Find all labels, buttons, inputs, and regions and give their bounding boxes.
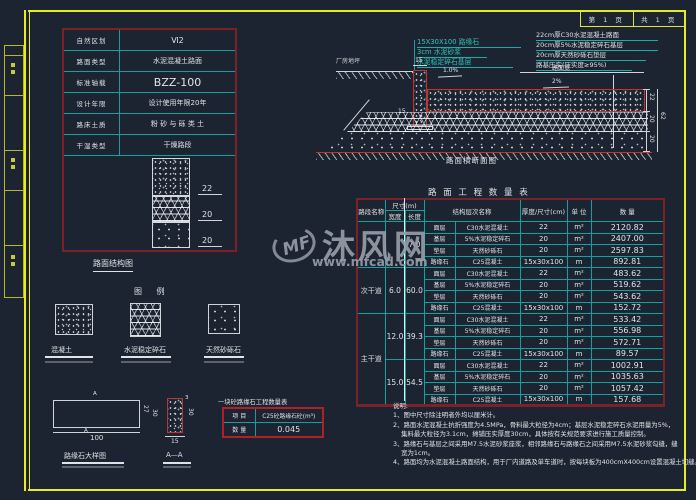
structure-layer-gravel	[152, 222, 190, 248]
curb-elevation-rect	[53, 400, 140, 428]
revision-stamp-icon	[11, 158, 15, 162]
notes-heading: 说明:	[393, 402, 693, 411]
structure-dim: 20	[202, 236, 212, 245]
spec-row: 自然区划 Ⅵ2	[64, 30, 235, 51]
slope-tick	[438, 75, 462, 77]
thickness-cell: 15x30x100	[520, 348, 567, 360]
notes-block: 说明:1、图中尺寸除注明者外均以厘米计。2、路面水泥混凝土抗折强度为4.5MPa…	[393, 402, 693, 468]
note-line: 4、路面均为水泥混凝土路面结构，用于厂内道路及单车道时，按每块板为400cmX4…	[393, 458, 693, 467]
revision-stamp-icon	[11, 255, 15, 259]
quantity-cell: 543.62	[591, 291, 664, 303]
curb-section-rect	[167, 398, 183, 433]
legend-underline	[121, 361, 171, 363]
dim-total-line	[657, 89, 658, 152]
legend-label: 混凝土	[51, 345, 72, 355]
revision-divider	[4, 95, 24, 96]
section-marker-bottom: A	[84, 428, 88, 434]
thickness-cell: 20	[520, 383, 567, 395]
quantity-cell: 2120.82	[591, 222, 664, 234]
curb-section-caption: A—A	[166, 451, 183, 459]
structure-layer-base	[152, 196, 190, 222]
spec-value: 设计使用年限20年	[120, 93, 235, 113]
mini-row-value: 0.045	[255, 423, 323, 438]
legend-underline	[121, 356, 171, 358]
note-line: 2、路面水泥混凝土抗折强度为4.5MPa，骨料最大粒径为4cm；基层水泥稳定碎石…	[393, 421, 693, 430]
unit-cell: m	[567, 256, 591, 268]
structure-dim: 20	[202, 210, 212, 219]
thickness-cell: 20	[520, 337, 567, 349]
width-cell: 6.0	[385, 268, 405, 314]
quantity-cell: 2597.83	[591, 245, 664, 257]
section-marker-top: A	[93, 391, 97, 397]
base-course	[347, 112, 648, 132]
section-name-cell: 主干道	[357, 314, 385, 406]
material-cell: C30水泥混凝土	[455, 314, 520, 326]
thickness-cell: 20	[520, 325, 567, 337]
legend-title: 图 例	[134, 286, 171, 297]
material-cell: 5%水泥稳定碎石	[455, 325, 520, 337]
curb-elevation-caption: 路缘石大样图	[64, 451, 106, 461]
dim-underline	[198, 220, 222, 221]
header-thickness: 厚度/尺寸(cm)	[520, 199, 567, 222]
quantity-cell: 519.62	[591, 279, 664, 291]
dim-line	[413, 65, 427, 66]
legend-swatch-cement-stabilized	[130, 303, 161, 337]
thickness-cell: 22	[520, 268, 567, 280]
quantity-cell: 556.98	[591, 325, 664, 337]
note-line: 3、路缘石与基层之间采用M7.5水泥砂浆座浆，相邻路缘石与路缘石之间采用M7.5…	[393, 440, 693, 449]
curb-dim-inner: 27	[142, 405, 149, 413]
material-cell: 天然砂砾石	[455, 245, 520, 257]
thickness-cell: 20	[520, 245, 567, 257]
unit-cell: m²	[567, 291, 591, 303]
thickness-cell: 20	[520, 291, 567, 303]
revision-divider	[4, 245, 24, 246]
material-cell: C30水泥混凝土	[455, 222, 520, 234]
inner-slope-label: 1.0%	[443, 67, 458, 74]
page-current-label: 第 1 页	[581, 12, 634, 26]
frame-left-inner-line	[29, 10, 30, 491]
section-height-dim: 30	[187, 408, 194, 416]
spec-row: 干湿类型 干燥路段	[64, 135, 235, 156]
quantity-cell: 572.71	[591, 337, 664, 349]
legend-underline	[45, 356, 93, 358]
unit-cell: m²	[567, 268, 591, 280]
legend-underline	[204, 361, 244, 363]
section-width-dim: 15	[171, 438, 179, 445]
revision-stamp-icon	[11, 63, 15, 67]
layer-cell: 基层	[424, 371, 455, 383]
unit-cell: m	[567, 348, 591, 360]
header-section: 路段名称	[357, 199, 385, 222]
dim-underline	[198, 246, 222, 247]
quantity-cell: 1057.42	[591, 383, 664, 395]
layer-cell: 面层	[424, 314, 455, 326]
legend-swatch-concrete	[55, 304, 93, 335]
material-cell: 5%水泥稳定碎石	[455, 279, 520, 291]
spec-label: 干湿类型	[64, 135, 120, 155]
spec-label: 标准轴载	[64, 72, 120, 92]
unit-cell: m²	[567, 314, 591, 326]
thickness-cell: 20	[520, 233, 567, 245]
legend-label: 水泥稳定碎石	[124, 345, 166, 355]
legend-underline	[204, 356, 244, 358]
quantity-cell: 89.57	[591, 348, 664, 360]
spec-row: 设计年限 设计使用年限20年	[64, 93, 235, 114]
material-cell: 5%水泥稳定碎石	[455, 233, 520, 245]
dim-line	[53, 432, 140, 433]
layer-cell: 路缘石	[424, 348, 455, 360]
material-cell: C25混凝土	[455, 302, 520, 314]
header-structure: 结构层次名称	[424, 199, 520, 222]
dim-tick	[643, 111, 650, 112]
caption-underline	[62, 466, 124, 468]
thickness-cell: 15x30x100	[520, 302, 567, 314]
legend-swatch-gravel	[208, 304, 240, 334]
revision-divider	[4, 55, 24, 56]
span-dim-label: 路面宽	[552, 63, 570, 72]
dim-chain-line	[646, 89, 647, 152]
structure-diagram-caption: 路面结构图	[93, 258, 133, 272]
curb-dim-outer: 30	[151, 409, 158, 417]
cad-sheet: 第 1 页 共 1 页 自然区划 Ⅵ2 路面类型 水泥混凝土路面 标准轴载 BZ…	[0, 0, 696, 500]
spec-row: 路床土质 粉 砂 与 砾 类 土	[64, 114, 235, 135]
mini-table-title: 一块砼路缘石工程数量表	[218, 397, 287, 406]
dim-line	[165, 436, 185, 437]
header-unit: 单 位	[567, 199, 591, 222]
layer-dim: 20	[648, 135, 655, 143]
revision-divider	[4, 190, 24, 191]
section-name-cell: 次干道	[357, 268, 385, 314]
spec-value: 水泥混凝土路面	[120, 51, 235, 71]
spec-value: 粉 砂 与 砾 类 土	[120, 114, 235, 134]
spec-row: 标准轴载 BZZ-100	[64, 72, 235, 93]
caption-underline	[163, 466, 191, 468]
structure-layer-concrete	[152, 158, 190, 196]
material-cell: 天然砂砾石	[455, 337, 520, 349]
mini-row-label: 项 目	[223, 408, 255, 423]
page-number-box: 第 1 页 共 1 页	[580, 11, 686, 27]
quantity-cell: 1035.63	[591, 371, 664, 383]
thickness-cell: 20	[520, 279, 567, 291]
material-cell: C25混凝土	[455, 256, 520, 268]
length-cell: 54.5	[405, 360, 424, 406]
thickness-cell: 22	[520, 314, 567, 326]
frame-revision-column	[4, 45, 24, 298]
mini-row-value: C25砼路缘石砼(m³)	[255, 408, 323, 423]
material-cell: 5%水泥稳定碎石	[455, 371, 520, 383]
material-cell: C30水泥混凝土	[455, 268, 520, 280]
dim-tick	[643, 151, 650, 152]
layer-cell: 路缘石	[424, 302, 455, 314]
length-cell: 39.3	[405, 314, 424, 360]
layer-cell: 面层	[424, 360, 455, 372]
spec-label: 自然区划	[64, 30, 120, 50]
quantity-cell: 1002.91	[591, 360, 664, 372]
page-total-label: 共 1 页	[634, 12, 686, 26]
unit-cell: m²	[567, 245, 591, 257]
quantity-cell: 152.72	[591, 302, 664, 314]
unit-cell: m²	[567, 233, 591, 245]
unit-cell: m²	[567, 383, 591, 395]
spec-value: 干燥路段	[120, 135, 235, 155]
dim-tick	[643, 131, 650, 132]
spec-label: 设计年限	[64, 93, 120, 113]
quantity-cell: 892.81	[591, 256, 664, 268]
layer-dim: 22	[648, 93, 655, 101]
mini-row-label: 数 量	[223, 423, 255, 438]
span-dim-line	[520, 72, 644, 73]
layer-dim: 20	[648, 115, 655, 123]
width-cell: 15.0	[385, 360, 405, 406]
curb-quantity-table: 项 目 C25砼路缘石砼(m³) 数 量 0.045	[222, 407, 324, 438]
unit-cell: m²	[567, 279, 591, 291]
material-cell: C30水泥混凝土	[455, 360, 520, 372]
layer-note: 路基压实(压实度≥95%)	[536, 59, 632, 71]
spec-value: BZZ-100	[120, 72, 235, 92]
layer-cell: 垫层	[424, 337, 455, 349]
layer-cell: 基层	[424, 279, 455, 291]
frame-bottom-line	[28, 489, 686, 491]
layer-cell: 垫层	[424, 383, 455, 395]
structure-dim: 22	[202, 184, 212, 193]
unit-cell: m²	[567, 325, 591, 337]
main-slope-label: 2%	[552, 78, 562, 85]
material-cell: 天然砂砾石	[455, 383, 520, 395]
layer-cell: 基层	[424, 325, 455, 337]
frame-left-outer-line	[24, 10, 26, 491]
curb-top-dim: 15	[415, 57, 423, 64]
spec-label: 路面类型	[64, 51, 120, 71]
legend-underline	[45, 361, 93, 363]
note-line: 集料最大粒径为3.1cm，摊铺压实厚度30cm，具体按有关规范要求进行施工质量控…	[393, 430, 693, 439]
material-cell: 天然砂砾石	[455, 291, 520, 303]
dim-tick	[643, 89, 650, 90]
curb-length-dim: 100	[90, 434, 103, 442]
thickness-cell: 22	[520, 360, 567, 372]
layer-cell: 垫层	[424, 291, 455, 303]
curb-note: 水泥稳定碎石基层	[417, 56, 513, 68]
unit-cell: m²	[567, 222, 591, 234]
ground-hatch	[336, 72, 414, 79]
quantity-cell: 2407.00	[591, 233, 664, 245]
watermark: MF 沐风网 www.mfcad.com	[268, 222, 458, 274]
spec-row: 路面类型 水泥混凝土路面	[64, 51, 235, 72]
legend-label: 天然砂砾石	[206, 345, 241, 355]
subbase-course	[326, 132, 648, 152]
dim-underline	[198, 194, 222, 195]
quantity-cell: 483.62	[591, 268, 664, 280]
unit-cell: m²	[567, 337, 591, 349]
surface-course	[427, 89, 645, 112]
unit-cell: m²	[567, 360, 591, 372]
thickness-cell: 22	[520, 222, 567, 234]
width-cell: 12.0	[385, 314, 405, 360]
thickness-cell: 20	[520, 371, 567, 383]
length-cell: 60.0	[405, 268, 424, 314]
note-line: 1、图中尺寸除注明者外均以厘米计。	[393, 411, 693, 420]
revision-divider	[4, 150, 24, 151]
header-quantity: 数 量	[591, 199, 664, 222]
unit-cell: m²	[567, 371, 591, 383]
spec-value: Ⅵ2	[120, 30, 235, 50]
material-cell: C25混凝土	[455, 348, 520, 360]
unit-cell: m	[567, 302, 591, 314]
watermark-url: www.mfcad.com	[312, 254, 428, 269]
thickness-cell: 15x30x100	[520, 256, 567, 268]
ground-label: 厂房地坪	[336, 56, 360, 65]
watermark-logo-text: MF	[280, 232, 313, 260]
spec-label: 路床土质	[64, 114, 120, 134]
quantity-table-title: 路 面 工 程 数 量 表	[428, 186, 530, 198]
total-dim: 62	[659, 112, 666, 120]
cross-section-caption: 路面横断面图	[446, 155, 497, 166]
caption-underline	[62, 462, 124, 464]
chamfer-dim: 3	[185, 395, 189, 401]
caption-underline	[163, 462, 191, 464]
quantity-cell: 533.42	[591, 314, 664, 326]
